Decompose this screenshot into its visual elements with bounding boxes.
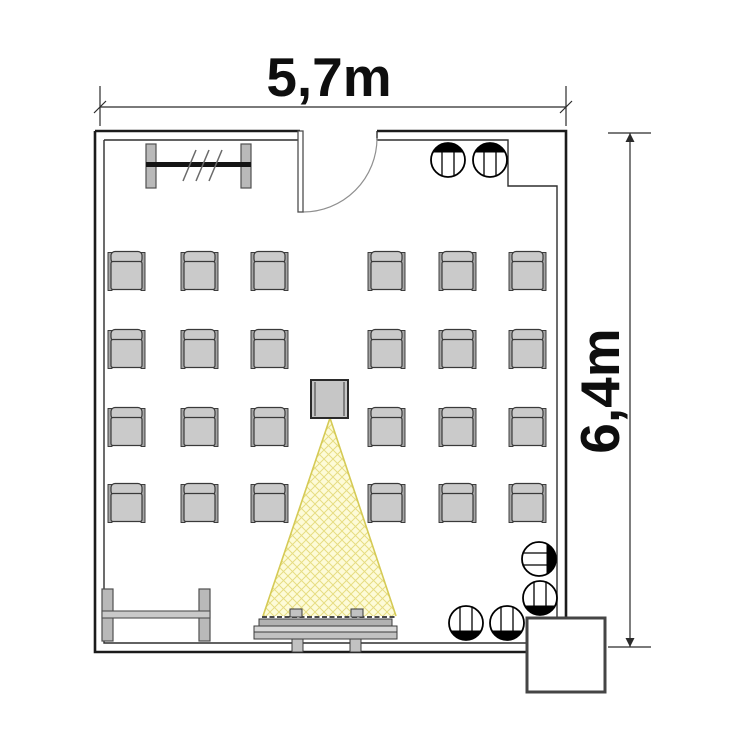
- width-dimension-label: 5,7m: [266, 46, 391, 108]
- screen-leg: [350, 639, 361, 652]
- floorplan: 5,7m 6,4m: [0, 0, 750, 750]
- armchair: [251, 252, 288, 291]
- height-dimension-label: 6,4m: [569, 328, 631, 453]
- door-swing-arc: [303, 138, 377, 212]
- armchair: [108, 408, 145, 447]
- projector-body: [311, 380, 348, 418]
- projector: [311, 380, 348, 418]
- armchair: [108, 484, 145, 523]
- round-chair: [431, 143, 465, 177]
- round-chair: [490, 606, 524, 640]
- round-chair: [522, 542, 556, 576]
- armchair: [108, 330, 145, 369]
- armchair: [368, 252, 405, 291]
- armchair: [368, 484, 405, 523]
- armchair: [251, 330, 288, 369]
- round-chair: [473, 143, 507, 177]
- round-chair: [449, 606, 483, 640]
- bench: [102, 589, 210, 641]
- armchair: [439, 252, 476, 291]
- floorplan-svg: 5,7m 6,4m: [0, 0, 750, 750]
- screen-bracket: [351, 609, 363, 617]
- door: [298, 131, 377, 212]
- height-arrow-up: [626, 133, 635, 142]
- armchair: [251, 484, 288, 523]
- armchair: [509, 408, 546, 447]
- armchair: [181, 484, 218, 523]
- door-jambs: [300, 131, 377, 140]
- armchair: [251, 408, 288, 447]
- screen-housing-bottom: [254, 632, 397, 639]
- armchair: [181, 330, 218, 369]
- screen-leg: [292, 639, 303, 652]
- round-chair: [523, 581, 557, 615]
- coat-rack-bar: [146, 162, 251, 167]
- screen-housing-top: [259, 619, 392, 626]
- armchair: [439, 484, 476, 523]
- armchair: [509, 330, 546, 369]
- armchair: [181, 408, 218, 447]
- round-chairs: [431, 143, 557, 640]
- bench-bar: [102, 611, 210, 618]
- armchair: [108, 252, 145, 291]
- armchair: [509, 484, 546, 523]
- screen-housing-mid: [254, 626, 397, 632]
- armchair: [509, 252, 546, 291]
- height-arrow-down: [626, 638, 635, 647]
- armchair: [368, 330, 405, 369]
- armchair: [368, 408, 405, 447]
- door-leaf: [298, 131, 303, 212]
- armchair: [439, 408, 476, 447]
- armchair: [439, 330, 476, 369]
- armchair: [181, 252, 218, 291]
- coat-rack: [146, 144, 251, 188]
- annex-box: [527, 618, 605, 692]
- screen-bracket: [290, 609, 302, 617]
